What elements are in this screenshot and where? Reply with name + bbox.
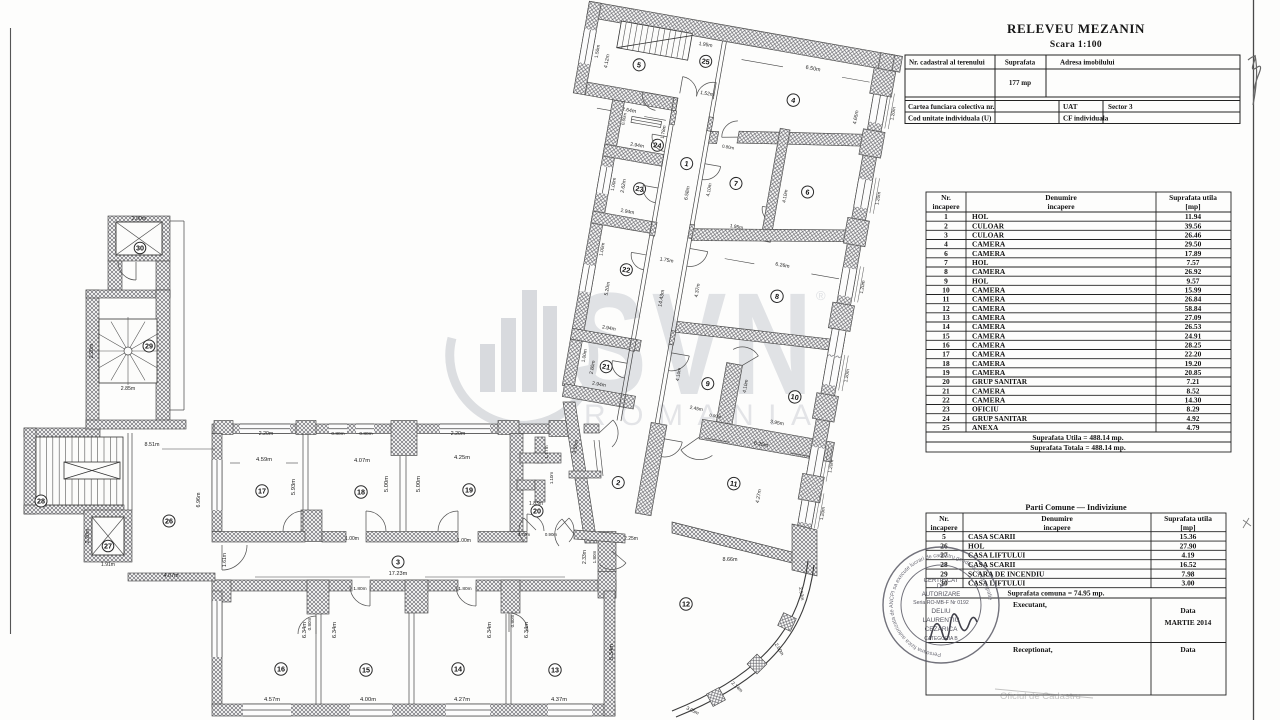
svg-text:2.25m: 2.25m xyxy=(624,536,638,542)
svg-text:0.80m: 0.80m xyxy=(331,431,344,437)
svg-text:6.34m: 6.34m xyxy=(487,622,493,638)
svg-text:1.00m: 1.00m xyxy=(345,536,359,542)
svg-text:3: 3 xyxy=(396,558,400,567)
svg-text:0.80m: 0.80m xyxy=(359,431,372,437)
svg-text:22: 22 xyxy=(942,395,950,404)
svg-text:17: 17 xyxy=(258,487,266,496)
svg-text:4.07m: 4.07m xyxy=(354,458,370,464)
svg-text:UAT: UAT xyxy=(1063,103,1078,111)
svg-text:29: 29 xyxy=(145,342,153,351)
svg-text:22.20: 22.20 xyxy=(1185,350,1202,359)
svg-text:CAMERA: CAMERA xyxy=(972,340,1006,349)
svg-text:25: 25 xyxy=(701,56,710,66)
svg-text:Adresa imobilului: Adresa imobilului xyxy=(1060,59,1114,67)
svg-text:Cod unitate individuala (U): Cod unitate individuala (U) xyxy=(908,115,992,123)
svg-text:Suprafata Utila = 488.14 m: Suprafata Utila = 488.14 mp. xyxy=(1032,433,1123,442)
svg-text:CULOAR: CULOAR xyxy=(972,230,1005,239)
svg-text:4.37m: 4.37m xyxy=(551,697,567,703)
svg-text:incapere: incapere xyxy=(933,202,961,211)
svg-text:20.85: 20.85 xyxy=(1185,368,1202,377)
svg-text:10: 10 xyxy=(790,392,799,402)
svg-text:CAMERA: CAMERA xyxy=(972,249,1006,258)
svg-text:0.80m: 0.80m xyxy=(307,617,312,630)
svg-text:21: 21 xyxy=(601,362,610,372)
svg-text:Data: Data xyxy=(1180,645,1195,654)
svg-text:CULOAR: CULOAR xyxy=(972,221,1005,230)
svg-text:Oficiul de Cadastru: Oficiul de Cadastru xyxy=(1000,691,1081,702)
svg-text:3.00: 3.00 xyxy=(1182,579,1195,588)
svg-text:19: 19 xyxy=(465,486,473,495)
svg-text:14.30: 14.30 xyxy=(1185,395,1202,404)
svg-text:4.79: 4.79 xyxy=(1187,423,1200,432)
svg-text:28: 28 xyxy=(37,497,45,506)
svg-text:incapere: incapere xyxy=(1048,202,1076,211)
svg-text:5.93m: 5.93m xyxy=(291,479,297,495)
svg-text:17: 17 xyxy=(942,350,950,359)
svg-text:Parti Comune — Indiviziune: Parti Comune — Indiviziune xyxy=(1025,503,1127,512)
svg-text:4: 4 xyxy=(944,240,948,249)
svg-text:Denumire: Denumire xyxy=(1045,193,1077,202)
svg-text:DE: DE xyxy=(937,584,945,590)
svg-text:CAMERA: CAMERA xyxy=(972,368,1006,377)
svg-text:13: 13 xyxy=(551,666,559,675)
svg-text:6.34m: 6.34m xyxy=(332,622,338,638)
svg-text:GRUP SANITAR: GRUP SANITAR xyxy=(972,414,1028,423)
svg-text:8.66m: 8.66m xyxy=(723,557,738,563)
svg-text:Suprafata: Suprafata xyxy=(1005,59,1036,67)
svg-text:14: 14 xyxy=(454,665,462,674)
svg-text:Suprafata utila: Suprafata utila xyxy=(1164,514,1212,523)
svg-text:CAMERA: CAMERA xyxy=(972,313,1006,322)
svg-text:HOL: HOL xyxy=(972,276,988,285)
svg-text:29.50: 29.50 xyxy=(1185,240,1202,249)
svg-text:16.52: 16.52 xyxy=(1180,560,1197,569)
svg-text:6: 6 xyxy=(944,249,948,258)
svg-text:19.20: 19.20 xyxy=(1185,359,1202,368)
svg-text:ANEXA: ANEXA xyxy=(972,423,999,432)
svg-text:8.51m: 8.51m xyxy=(145,442,160,448)
svg-text:Data: Data xyxy=(1180,606,1195,615)
svg-text:0.80m: 0.80m xyxy=(510,614,515,627)
svg-text:Suprafata comuna = 74.95 m: Suprafata comuna = 74.95 mp. xyxy=(1007,589,1104,598)
svg-text:21: 21 xyxy=(942,386,950,395)
svg-text:15.36: 15.36 xyxy=(1180,532,1197,541)
svg-text:26.92: 26.92 xyxy=(1185,267,1202,276)
svg-text:15: 15 xyxy=(362,666,370,675)
svg-text:CAMERA: CAMERA xyxy=(972,359,1006,368)
svg-text:Sector 3: Sector 3 xyxy=(1108,103,1133,111)
svg-text:Executant,: Executant, xyxy=(1013,600,1047,609)
svg-text:2.33m: 2.33m xyxy=(582,550,588,564)
svg-text:Scara 1:100: Scara 1:100 xyxy=(1050,40,1102,50)
svg-text:22: 22 xyxy=(622,265,631,275)
svg-text:27.09: 27.09 xyxy=(1185,313,1202,322)
svg-text:26: 26 xyxy=(940,541,948,550)
svg-text:24: 24 xyxy=(653,140,662,150)
svg-text:[mp]: [mp] xyxy=(1180,523,1195,532)
svg-text:incapere: incapere xyxy=(931,523,959,532)
svg-text:2.85m: 2.85m xyxy=(121,386,135,392)
svg-text:4.59m: 4.59m xyxy=(256,457,272,463)
svg-text:25: 25 xyxy=(942,423,950,432)
svg-text:2.20m: 2.20m xyxy=(451,431,465,437)
svg-text:[mp]: [mp] xyxy=(1185,202,1200,211)
svg-text:CF individuala: CF individuala xyxy=(1063,115,1109,123)
svg-text:4.00m: 4.00m xyxy=(360,697,376,703)
svg-text:17.89: 17.89 xyxy=(1185,249,1202,258)
svg-text:1.80m: 1.80m xyxy=(592,550,597,563)
svg-text:39.56: 39.56 xyxy=(1185,221,1202,230)
svg-text:7: 7 xyxy=(944,258,948,267)
svg-text:5: 5 xyxy=(942,532,946,541)
svg-text:11: 11 xyxy=(729,479,738,489)
svg-text:8: 8 xyxy=(944,267,948,276)
svg-text:1.80m: 1.80m xyxy=(353,586,366,592)
svg-text:9: 9 xyxy=(944,276,948,285)
svg-text:LAURENTIU: LAURENTIU xyxy=(923,617,960,624)
svg-text:9.57: 9.57 xyxy=(1187,276,1200,285)
svg-text:4.92: 4.92 xyxy=(1187,414,1200,423)
svg-text:RELEVEU MEZANIN: RELEVEU MEZANIN xyxy=(1007,21,1145,36)
svg-text:®: ® xyxy=(816,288,826,303)
svg-text:12: 12 xyxy=(682,600,690,609)
svg-text:4.25m: 4.25m xyxy=(454,455,470,461)
svg-text:18: 18 xyxy=(942,359,950,368)
svg-text:23: 23 xyxy=(942,405,950,414)
svg-text:58.84: 58.84 xyxy=(1185,304,1202,313)
svg-text:CAMERA: CAMERA xyxy=(972,350,1006,359)
svg-text:177 mp: 177 mp xyxy=(1009,79,1031,87)
svg-text:26.46: 26.46 xyxy=(1185,230,1202,239)
svg-text:11.94: 11.94 xyxy=(1185,212,1202,221)
svg-text:27: 27 xyxy=(104,542,112,551)
svg-text:10: 10 xyxy=(942,285,950,294)
svg-text:2.20m: 2.20m xyxy=(85,529,91,543)
svg-text:CAMERA: CAMERA xyxy=(972,304,1006,313)
svg-text:HOL: HOL xyxy=(972,258,988,267)
svg-text:CAMERA: CAMERA xyxy=(972,395,1006,404)
svg-text:7.98: 7.98 xyxy=(1182,569,1195,578)
svg-text:17.23m: 17.23m xyxy=(389,571,408,577)
svg-text:14: 14 xyxy=(942,322,950,331)
svg-text:7.21: 7.21 xyxy=(1187,377,1200,386)
svg-text:2.00m: 2.00m xyxy=(132,216,146,222)
svg-text:HOL: HOL xyxy=(972,212,988,221)
svg-text:1: 1 xyxy=(944,212,948,221)
svg-text:20: 20 xyxy=(942,377,950,386)
svg-text:Seria RO-MB-F Nr 0192: Seria RO-MB-F Nr 0192 xyxy=(913,600,969,606)
svg-text:Suprafata Totala = 488.14: Suprafata Totala = 488.14 mp. xyxy=(1030,443,1126,452)
svg-text:Nr.: Nr. xyxy=(941,193,951,202)
svg-text:2: 2 xyxy=(944,221,948,230)
svg-text:0.90m: 0.90m xyxy=(545,532,558,537)
svg-text:CAMERA: CAMERA xyxy=(972,240,1006,249)
svg-text:28.25: 28.25 xyxy=(1185,340,1202,349)
svg-text:HOL: HOL xyxy=(968,541,984,550)
svg-text:Suprafata utila: Suprafata utila xyxy=(1169,193,1217,202)
svg-text:6.34m: 6.34m xyxy=(524,622,530,638)
svg-text:8.52: 8.52 xyxy=(1187,386,1200,395)
svg-text:4.19: 4.19 xyxy=(1182,551,1195,560)
svg-text:16: 16 xyxy=(942,340,950,349)
svg-text:28: 28 xyxy=(940,560,948,569)
svg-text:2.20m: 2.20m xyxy=(259,431,273,437)
svg-text:29: 29 xyxy=(940,569,948,578)
svg-text:16: 16 xyxy=(277,665,285,674)
svg-text:CATEGORIA B: CATEGORIA B xyxy=(924,636,958,642)
svg-text:26: 26 xyxy=(165,517,173,526)
svg-text:1.91m: 1.91m xyxy=(101,562,115,568)
svg-text:5.34m: 5.34m xyxy=(609,644,615,660)
svg-text:3: 3 xyxy=(944,230,948,239)
svg-text:DELIU: DELIU xyxy=(931,608,950,615)
svg-text:8.29: 8.29 xyxy=(1187,405,1200,414)
svg-text:4.07m: 4.07m xyxy=(164,573,179,579)
svg-text:5.00m: 5.00m xyxy=(416,476,422,492)
svg-text:4.27m: 4.27m xyxy=(454,697,470,703)
svg-text:1.00m: 1.00m xyxy=(457,538,471,544)
svg-text:Cartea funciara colectiva nr.: Cartea funciara colectiva nr. xyxy=(908,103,995,111)
svg-text:4.57m: 4.57m xyxy=(264,697,280,703)
svg-text:15: 15 xyxy=(942,331,950,340)
svg-text:CASA SCARII: CASA SCARII xyxy=(968,532,1016,541)
svg-text:incapere: incapere xyxy=(1044,523,1072,532)
svg-text:CAMERA: CAMERA xyxy=(972,285,1006,294)
svg-text:1.80m: 1.80m xyxy=(458,586,471,592)
svg-text:1.61m: 1.61m xyxy=(222,553,228,567)
svg-text:26.84: 26.84 xyxy=(1185,295,1202,304)
svg-text:Nr. cadastral al terenului: Nr. cadastral al terenului xyxy=(909,59,985,67)
svg-text:30: 30 xyxy=(136,244,144,253)
svg-text:19: 19 xyxy=(942,368,950,377)
svg-text:OFICIU: OFICIU xyxy=(972,405,999,414)
svg-text:CAMERA: CAMERA xyxy=(972,331,1006,340)
svg-text:18: 18 xyxy=(357,488,365,497)
svg-text:24.91: 24.91 xyxy=(1185,331,1202,340)
svg-text:0.70m: 0.70m xyxy=(518,532,531,537)
svg-text:12: 12 xyxy=(942,304,950,313)
svg-text:GRUP SANITAR: GRUP SANITAR xyxy=(972,377,1028,386)
svg-text:1.83m: 1.83m xyxy=(529,501,543,507)
svg-text:Receptionat,: Receptionat, xyxy=(1013,645,1053,654)
svg-text:CAMERA: CAMERA xyxy=(972,386,1006,395)
svg-text:1.10m: 1.10m xyxy=(549,472,554,485)
svg-text:1.17m: 1.17m xyxy=(544,445,550,458)
svg-text:13: 13 xyxy=(942,313,950,322)
svg-text:7.57: 7.57 xyxy=(1187,258,1200,267)
svg-text:Denumire: Denumire xyxy=(1041,514,1073,523)
svg-text:Nr.: Nr. xyxy=(939,514,949,523)
svg-text:2.20m: 2.20m xyxy=(89,344,95,358)
svg-text:CAMERA: CAMERA xyxy=(972,295,1006,304)
svg-text:20: 20 xyxy=(533,507,541,516)
svg-text:CAMERA: CAMERA xyxy=(972,267,1006,276)
svg-text:15.99: 15.99 xyxy=(1185,285,1202,294)
svg-text:MARTIE 2014: MARTIE 2014 xyxy=(1165,618,1212,627)
svg-text:27.90: 27.90 xyxy=(1180,541,1197,550)
svg-text:26.53: 26.53 xyxy=(1185,322,1202,331)
svg-text:CAMERA: CAMERA xyxy=(972,322,1006,331)
svg-text:11: 11 xyxy=(943,295,950,304)
svg-text:6.96m: 6.96m xyxy=(196,492,202,507)
svg-text:24: 24 xyxy=(942,414,950,423)
svg-text:AUTORIZARE: AUTORIZARE xyxy=(922,592,961,598)
svg-text:5.00m: 5.00m xyxy=(384,476,390,492)
